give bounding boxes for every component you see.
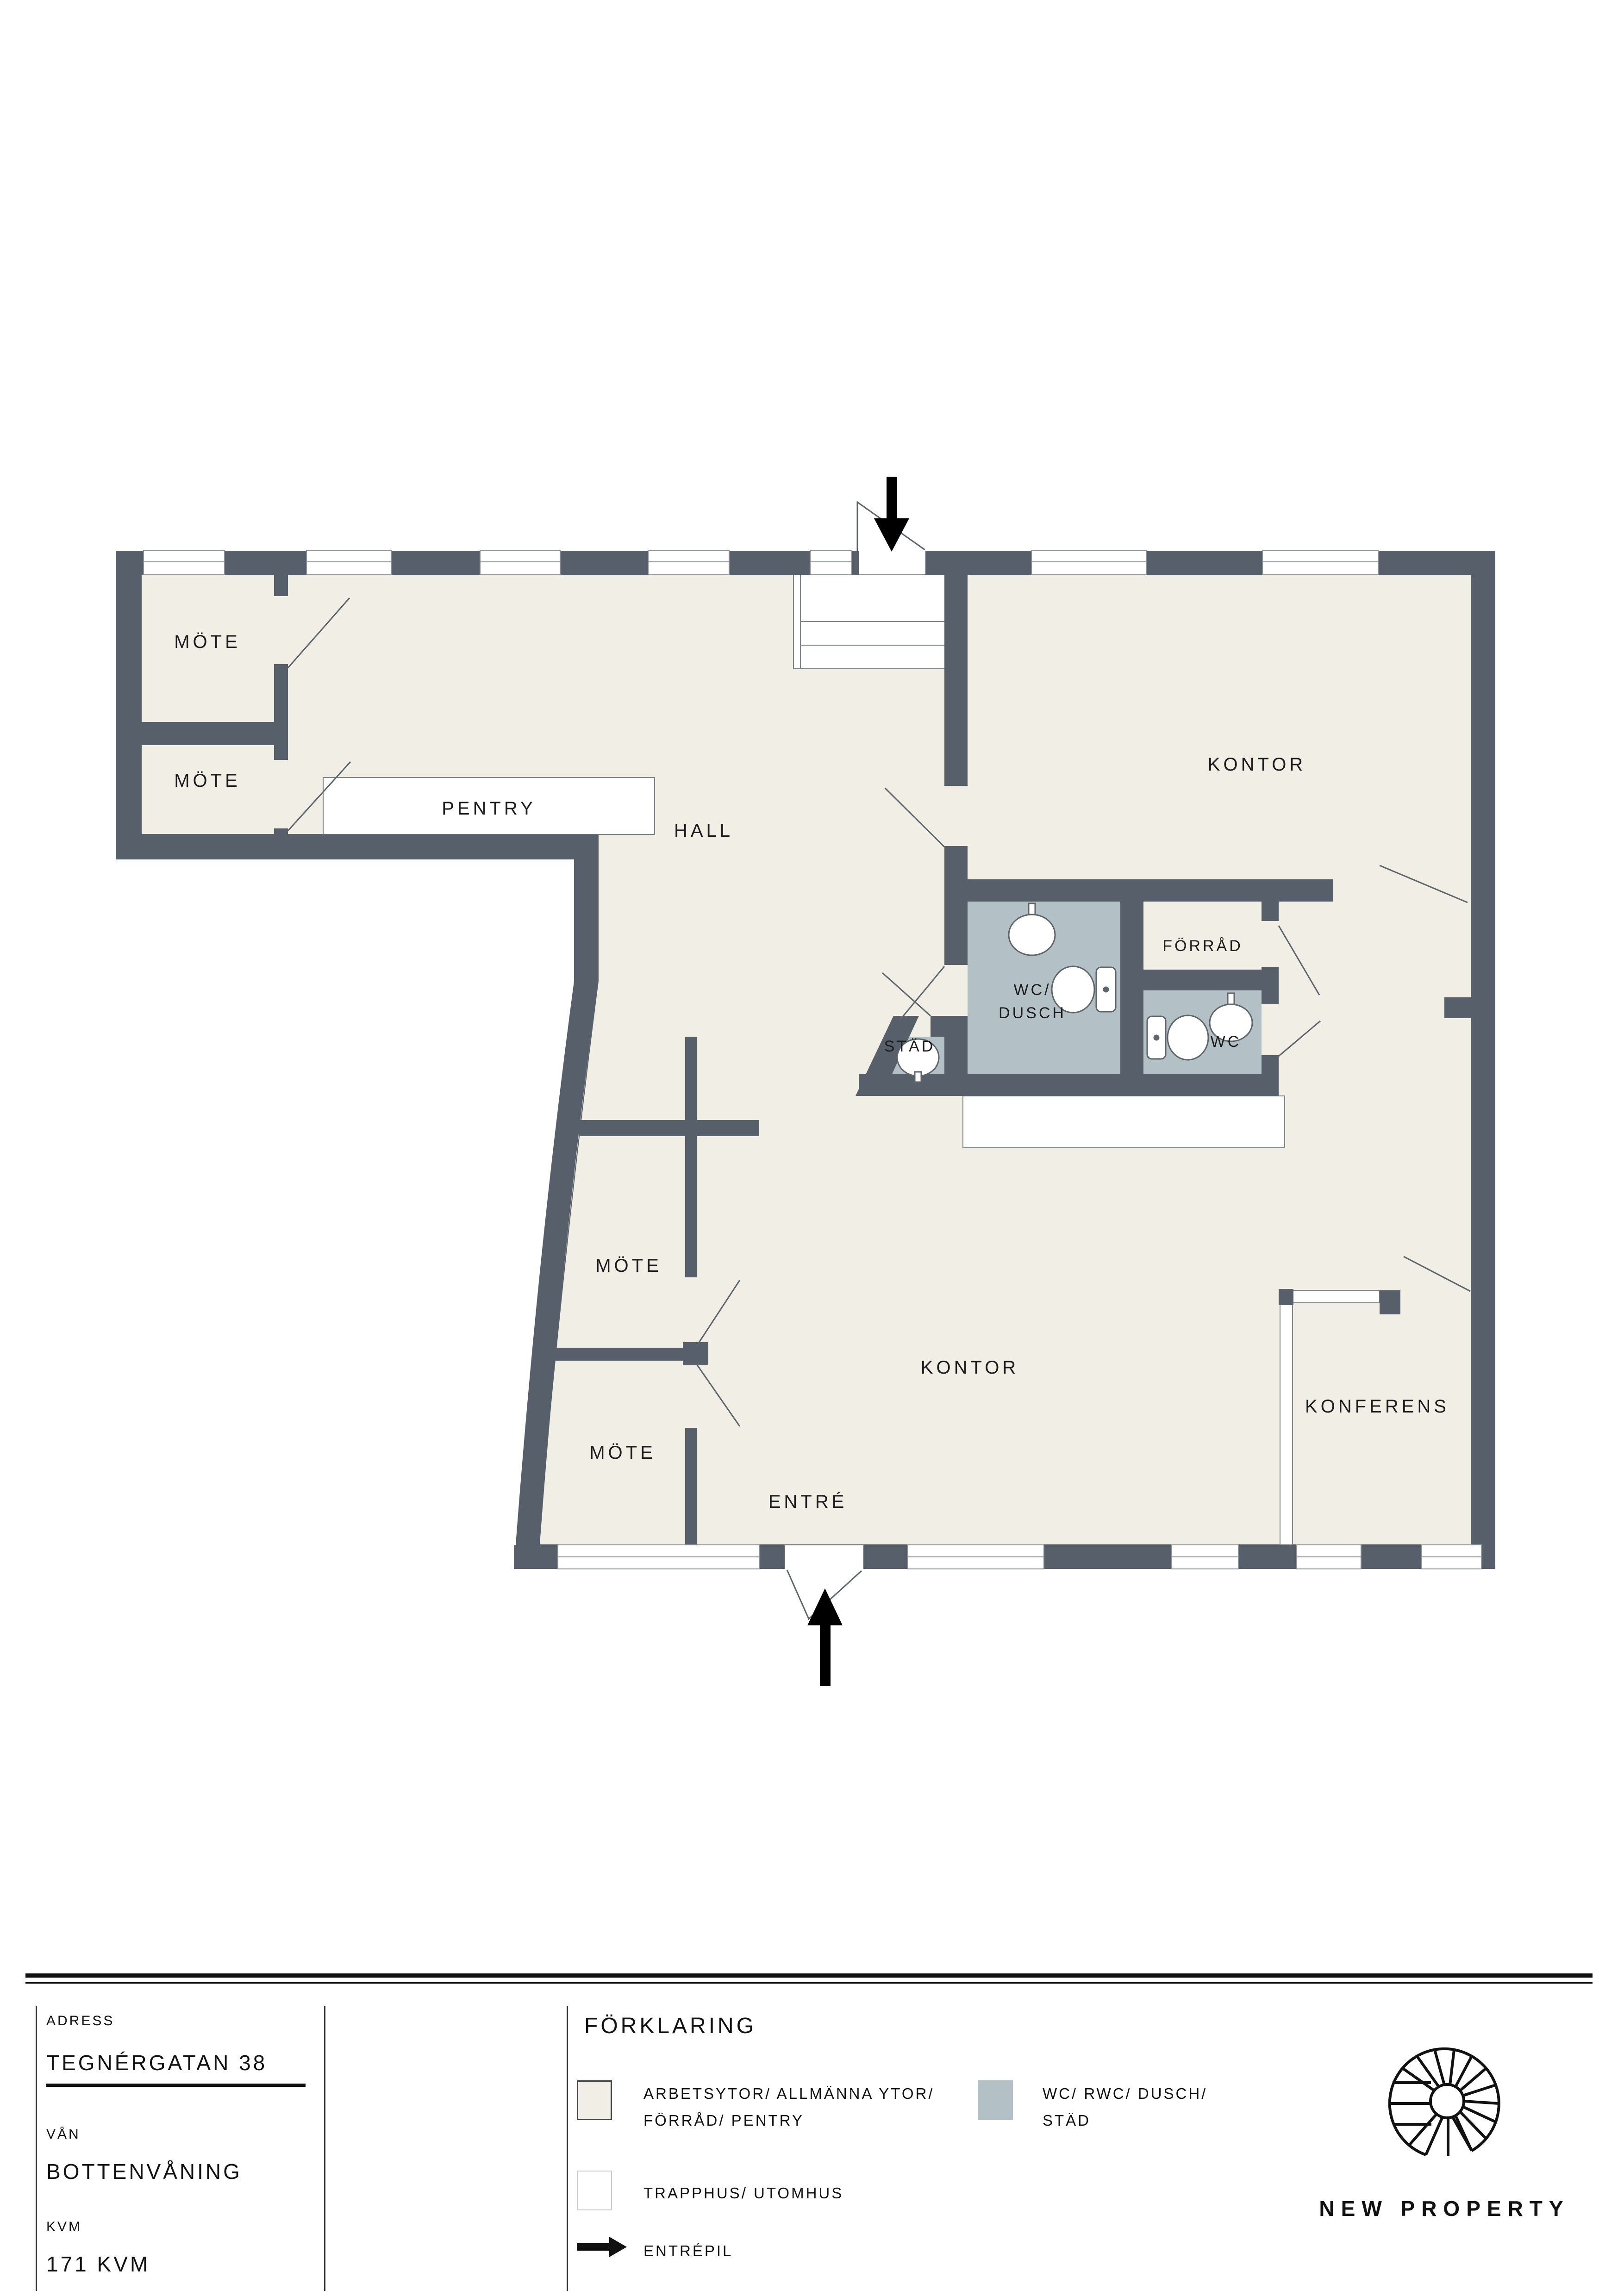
wall-segment bbox=[274, 828, 288, 859]
wall-segment bbox=[1361, 1545, 1421, 1569]
wall-segment bbox=[863, 1545, 907, 1569]
wall-segment bbox=[1444, 997, 1471, 1018]
footer: ADRESS TEGNÉRGATAN 38 VÅN BOTTENVÅNING K… bbox=[0, 1967, 1624, 2296]
legend-item-wet: WC/ RWC/ DUSCH/ STÄD bbox=[1043, 2080, 1207, 2134]
window bbox=[648, 551, 729, 575]
legend-item-work: ARBETSYTOR/ ALLMÄNNA YTOR/ FÖRRÅD/ PENTR… bbox=[643, 2080, 935, 2134]
area-label: KVM bbox=[46, 2219, 82, 2235]
room-label-wc: WC bbox=[1211, 1033, 1242, 1051]
wall-segment bbox=[685, 1428, 697, 1545]
window bbox=[1296, 1545, 1361, 1569]
window bbox=[558, 1545, 759, 1569]
wall-segment bbox=[1262, 967, 1279, 1004]
legend-item-outdoor: TRAPPHUS/ UTOMHUS bbox=[643, 2180, 843, 2207]
stairwell bbox=[793, 575, 948, 669]
room-label-hall: HALL bbox=[674, 821, 733, 841]
room-label-stad: STÄD bbox=[884, 1038, 936, 1055]
divider bbox=[567, 2006, 568, 2291]
room-label-forrad: FÖRRÅD bbox=[1162, 937, 1243, 955]
wall-segment bbox=[391, 551, 480, 575]
wall-segment bbox=[116, 834, 598, 859]
wall-segment bbox=[685, 1037, 697, 1120]
floor-plan: MÖTE MÖTE PENTRY HALL KONTOR FÖRRÅD WC/ … bbox=[0, 0, 1624, 2296]
room-label-mote-3: MÖTE bbox=[595, 1256, 662, 1276]
closet-niche bbox=[963, 1096, 1285, 1148]
wall-segment bbox=[759, 1545, 785, 1569]
wall-right-outer bbox=[1471, 551, 1495, 1569]
window bbox=[907, 1545, 1044, 1569]
wall-segment bbox=[931, 1016, 968, 1037]
wall-segment bbox=[551, 1348, 697, 1361]
legend-item-wet-line1: WC/ RWC/ DUSCH/ bbox=[1043, 2080, 1207, 2107]
room-label-wc-dusch-1: WC/ bbox=[1013, 981, 1051, 999]
room-label-konferens: KONFERENS bbox=[1305, 1396, 1449, 1417]
wall-segment bbox=[1044, 1545, 1171, 1569]
window bbox=[810, 551, 852, 575]
wall-segment bbox=[1120, 902, 1143, 1096]
toilet-icon bbox=[1147, 1015, 1208, 1060]
wall-segment bbox=[1262, 902, 1279, 921]
divider bbox=[324, 2006, 325, 2291]
entrepil-arrow-icon bbox=[577, 2233, 632, 2261]
wall-segment bbox=[944, 879, 1333, 902]
window bbox=[1421, 1545, 1481, 1569]
divider bbox=[36, 2006, 37, 2291]
wall-segment bbox=[852, 551, 859, 575]
wall-segment bbox=[1238, 1545, 1296, 1569]
legend-swatch-work bbox=[577, 2080, 612, 2120]
rule-thick bbox=[25, 1973, 1593, 1978]
wall-segment bbox=[729, 551, 810, 575]
room-label-kontor-lower: KONTOR bbox=[921, 1357, 1019, 1378]
wall-segment bbox=[1481, 1545, 1495, 1569]
window bbox=[480, 551, 560, 575]
legend-item-work-line2: FÖRRÅD/ PENTRY bbox=[643, 2107, 935, 2134]
wall-segment bbox=[141, 722, 288, 745]
wall-segment bbox=[560, 551, 648, 575]
window bbox=[306, 551, 391, 575]
wall-segment bbox=[1380, 1290, 1400, 1314]
address-value: TEGNÉRGATAN 38 bbox=[46, 2050, 267, 2075]
wall-segment bbox=[925, 551, 1031, 575]
window bbox=[144, 551, 225, 575]
wall-segment bbox=[944, 575, 968, 786]
wall-segment bbox=[514, 1545, 558, 1569]
address-label: ADRESS bbox=[46, 2013, 114, 2029]
wall-segment bbox=[685, 1136, 697, 1277]
room-label-kontor-upper: KONTOR bbox=[1208, 754, 1306, 775]
area-value: 171 KVM bbox=[46, 2252, 150, 2277]
legend-swatch-outdoor bbox=[577, 2171, 612, 2210]
window bbox=[1262, 551, 1378, 575]
legend-title: FÖRKLARING bbox=[584, 2013, 756, 2039]
arrow-down-icon bbox=[874, 477, 909, 552]
wall-segment bbox=[274, 575, 288, 596]
wall-segment bbox=[1279, 1289, 1293, 1305]
floor-value: BOTTENVÅNING bbox=[46, 2159, 242, 2184]
legend-swatch-wet bbox=[978, 2080, 1013, 2120]
legend-item-wet-line2: STÄD bbox=[1043, 2107, 1207, 2134]
wall-segment bbox=[274, 664, 288, 722]
address-underline bbox=[46, 2084, 306, 2087]
wall-segment bbox=[944, 902, 968, 965]
room-label-entre: ENTRÉ bbox=[768, 1491, 848, 1512]
floor-label: VÅN bbox=[46, 2127, 81, 2142]
wall-segment bbox=[579, 1120, 759, 1136]
glass-wall bbox=[1293, 1290, 1380, 1303]
room-label-mote-4: MÖTE bbox=[589, 1443, 656, 1463]
room-label-wc-dusch-2: DUSCH bbox=[999, 1004, 1066, 1022]
wall-segment bbox=[574, 834, 598, 986]
window bbox=[1031, 551, 1147, 575]
entrepil-label: ENTRÉPIL bbox=[643, 2238, 733, 2265]
wall-segment bbox=[274, 745, 288, 760]
wall-segment bbox=[1143, 970, 1279, 990]
legend-item-work-line1: ARBETSYTOR/ ALLMÄNNA YTOR/ bbox=[643, 2080, 935, 2107]
wall-left-outer bbox=[116, 551, 141, 859]
wall-segment bbox=[683, 1342, 708, 1365]
room-label-pentry: PENTRY bbox=[442, 798, 536, 819]
brand-logo-spiral-stair-icon bbox=[1361, 2022, 1537, 2189]
room-label-mote-1: MÖTE bbox=[174, 632, 241, 652]
wall-segment bbox=[1147, 551, 1262, 575]
window bbox=[1171, 1545, 1238, 1569]
arrow-up-icon bbox=[807, 1588, 843, 1686]
rule-thin bbox=[25, 1982, 1593, 1984]
room-label-mote-2: MÖTE bbox=[174, 771, 241, 791]
glass-wall bbox=[1280, 1303, 1293, 1545]
wall-segment bbox=[225, 551, 306, 575]
brand-name: NEW PROPERTY bbox=[1305, 2196, 1583, 2221]
